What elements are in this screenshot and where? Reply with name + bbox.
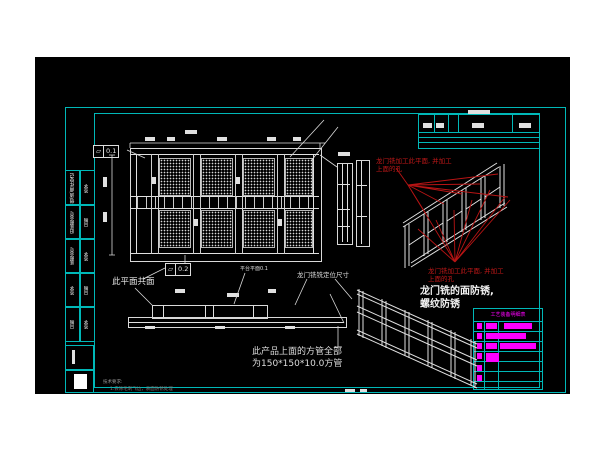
red-annotation-lower-line2: 上面的孔	[428, 275, 504, 283]
plan-mid-line	[131, 208, 319, 209]
elevation-base-line	[129, 322, 344, 323]
fastener-mark	[152, 177, 156, 184]
elevation-foot	[215, 326, 225, 329]
product-note-line1: 此产品上面的方管全部	[252, 346, 342, 358]
fastener-mark	[236, 177, 240, 184]
red-annotation-upper: 龙门铣加工此平面, 并加工 上面的孔	[376, 157, 452, 173]
section-view-b	[356, 160, 370, 247]
section-line	[342, 164, 343, 242]
highlight-cell	[486, 353, 499, 362]
tolerance-frame-top: ▱ 0.1	[93, 145, 119, 158]
left-field-2-label: 底图总号	[71, 247, 76, 265]
left-field-0-label: 借(通)用件登记	[71, 173, 76, 204]
highlight-cell	[500, 343, 536, 349]
cad-canvas: 借(通)用件登记 签字 旧底图总号 日期 底图总号 签字 签字 日期 日期 签字	[35, 57, 570, 394]
parts-table: 工艺装备明细表	[473, 308, 543, 390]
elevation-foot	[145, 326, 155, 329]
left-field-2-sub: 签字	[79, 238, 95, 274]
dimension-text-blob	[145, 137, 155, 141]
coplanar-note: 此平面共面	[112, 277, 155, 287]
section-line	[357, 185, 367, 186]
fastener-mark	[194, 219, 198, 226]
plan-rail-line	[131, 253, 319, 254]
left-field-3-label: 签字	[71, 286, 76, 295]
plan-view	[130, 148, 322, 262]
highlight-cell	[486, 343, 497, 349]
revision-table	[418, 114, 540, 149]
product-note: 此产品上面的方管全部 为150*150*10.0方管	[252, 346, 342, 370]
rail-divider	[213, 306, 214, 318]
perforated-panel	[243, 210, 275, 248]
dimension-text-blob	[167, 137, 175, 141]
rust-note-line1: 龙门铣的面防锈,	[420, 285, 494, 298]
tolerance-value: 0.1	[104, 146, 118, 157]
table-line	[419, 142, 539, 143]
tolerance-value: 0.2	[176, 264, 190, 275]
left-field-1-sub: 日期	[79, 204, 95, 240]
section-line	[357, 216, 367, 217]
left-field-3-sub: 日期	[79, 272, 95, 308]
elevation-rail	[152, 305, 268, 319]
dimension-text-blob	[338, 152, 350, 156]
table-line	[484, 321, 485, 389]
table-text-blob	[468, 110, 490, 114]
dimension-text-blob	[227, 293, 239, 297]
table-line	[458, 115, 459, 132]
highlight-cell	[486, 323, 497, 329]
left-field-0-sub: 签字	[79, 170, 95, 206]
red-annotation-lower-line1: 龙门铣加工此平面, 并加工	[428, 267, 504, 275]
rust-note-line2: 螺纹防锈	[420, 298, 494, 311]
highlight-cell	[477, 353, 482, 359]
dimension-text-blob	[175, 289, 185, 293]
perforated-panel	[243, 158, 275, 196]
dimension-text-blob	[103, 212, 107, 222]
bottom-left-cell-bottom	[65, 369, 94, 393]
highlight-cell	[504, 323, 532, 329]
dimension-text-blob	[268, 289, 276, 293]
red-annotation-upper-line1: 龙门铣加工此平面, 并加工	[376, 157, 452, 165]
platform-label: 平台平面0.1	[240, 266, 268, 272]
rust-note: 龙门铣的面防锈, 螺纹防锈	[420, 285, 494, 311]
left-field-1-label: 旧底图总号	[71, 211, 76, 234]
left-field-4-sub: 签字	[79, 306, 95, 342]
table-text-blob	[519, 123, 531, 128]
red-annotation-lower: 龙门铣加工此平面, 并加工 上面的孔	[428, 267, 504, 283]
table-line	[434, 115, 435, 132]
section-view-a	[337, 163, 353, 245]
rail-divider	[205, 306, 206, 318]
plan-rail-line	[131, 154, 319, 155]
cad-screenshot-page: 借(通)用件登记 签字 旧底图总号 日期 底图总号 签字 签字 日期 日期 签字	[0, 0, 600, 450]
section-line	[347, 164, 348, 242]
section-line	[361, 161, 362, 244]
left-field-4-label: 日期	[71, 320, 76, 329]
table-text-blob	[436, 123, 444, 128]
tech-requirements-item: 1.去除毛刺飞边，表面防锈处理	[110, 387, 173, 392]
highlight-cell	[477, 375, 482, 381]
tech-requirements-title: 技术要求:	[103, 380, 123, 385]
section-line	[338, 209, 350, 210]
table-text-blob	[423, 123, 432, 128]
bottom-left-cell-top	[65, 345, 94, 371]
red-annotation-upper-line2: 上面的孔	[376, 165, 452, 173]
perforated-panel	[285, 158, 313, 196]
perforated-panel	[201, 210, 233, 248]
highlight-cell	[477, 323, 482, 329]
white-block	[74, 374, 87, 389]
flatness-symbol-icon: ▱	[94, 146, 104, 157]
dimension-text-blob	[267, 137, 276, 141]
flatness-symbol-icon: ▱	[166, 264, 176, 275]
fastener-mark	[278, 219, 282, 226]
border-text-blob	[345, 389, 355, 392]
border-text-blob	[360, 389, 367, 392]
section-line	[338, 184, 350, 185]
rail-divider	[163, 306, 164, 318]
highlight-cell	[477, 333, 482, 339]
dimension-text-blob	[293, 137, 301, 141]
section-line	[338, 226, 350, 227]
highlight-cell	[477, 365, 482, 371]
tolerance-frame-bottom: ▱ 0.2	[165, 263, 191, 276]
elevation-foot	[285, 326, 295, 329]
table-text-blob	[472, 123, 484, 128]
plan-mid-ticks	[137, 197, 313, 208]
product-note-line2: 为150*150*10.0方管	[252, 358, 342, 370]
table-line	[512, 115, 513, 132]
perforated-panel	[201, 158, 233, 196]
dimension-text-blob	[185, 130, 197, 134]
rotated-text-blob	[72, 350, 75, 364]
perforated-panel	[285, 210, 313, 248]
gantry-label: 龙门铣铣定位尺寸	[297, 272, 349, 280]
plan-end-post	[313, 154, 314, 254]
parts-table-header: 工艺装备明细表	[474, 312, 542, 318]
highlight-cell	[486, 333, 526, 339]
highlight-cell	[477, 343, 482, 349]
dimension-text-blob	[103, 177, 107, 187]
left-field-strip: 借(通)用件登记 签字 旧底图总号 日期 底图总号 签字 签字 日期 日期 签字	[65, 170, 94, 340]
perforated-panel	[159, 158, 191, 196]
perforated-panel	[159, 210, 191, 248]
table-line	[419, 132, 539, 133]
rail-divider	[253, 306, 254, 318]
table-line	[448, 115, 449, 132]
table-line	[419, 137, 539, 138]
dimension-text-blob	[217, 137, 227, 141]
